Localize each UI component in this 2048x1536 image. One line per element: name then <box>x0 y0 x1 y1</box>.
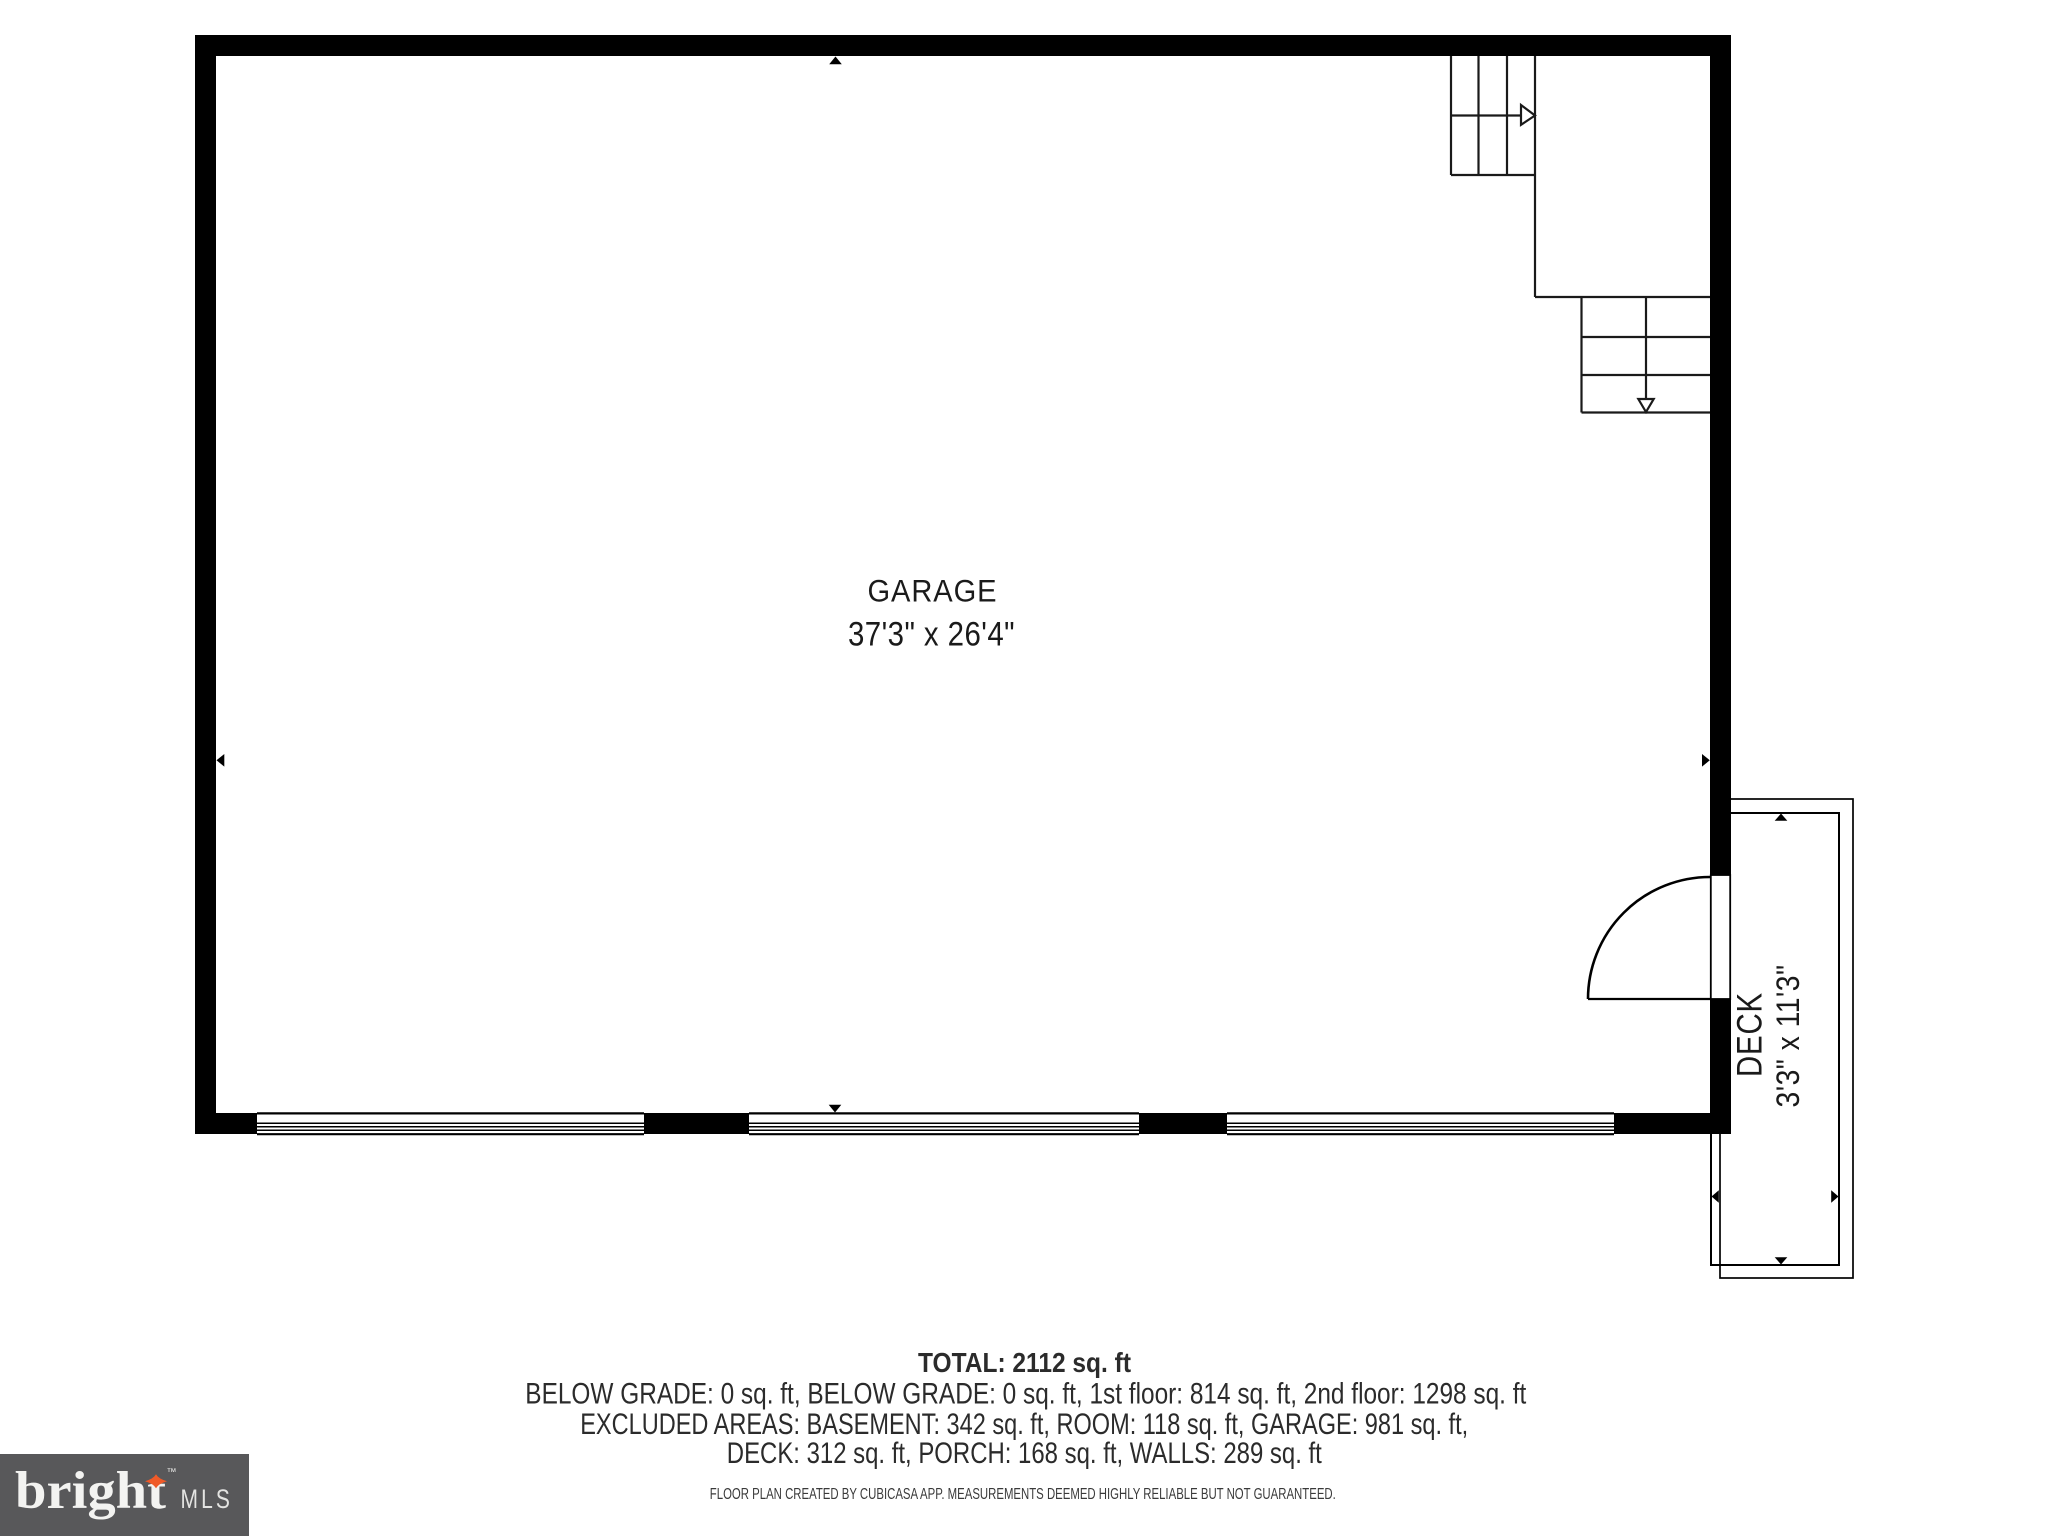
svg-text:GARAGE: GARAGE <box>868 573 998 609</box>
svg-text:37'3" x 26'4": 37'3" x 26'4" <box>848 616 1015 654</box>
svg-text:3'3" x 11'3": 3'3" x 11'3" <box>1770 965 1806 1108</box>
svg-text:DECK: DECK <box>1731 992 1770 1077</box>
svg-text:MLS: MLS <box>181 1484 234 1514</box>
svg-text:™: ™ <box>167 1467 177 1478</box>
svg-text:BELOW GRADE: 0 sq. ft, BELOW G: BELOW GRADE: 0 sq. ft, BELOW GRADE: 0 sq… <box>525 1377 1526 1410</box>
svg-text:EXCLUDED AREAS: BASEMENT: 342: EXCLUDED AREAS: BASEMENT: 342 sq. ft, RO… <box>580 1408 1468 1441</box>
svg-text:DECK: 312 sq. ft, PORCH: 168 s: DECK: 312 sq. ft, PORCH: 168 sq. ft, WAL… <box>727 1437 1322 1470</box>
svg-text:FLOOR PLAN CREATED BY CUBICASA: FLOOR PLAN CREATED BY CUBICASA APP. MEAS… <box>710 1486 1336 1503</box>
svg-text:TOTAL: 2112 sq. ft: TOTAL: 2112 sq. ft <box>918 1347 1131 1378</box>
svg-text:bright: bright <box>15 1462 166 1520</box>
